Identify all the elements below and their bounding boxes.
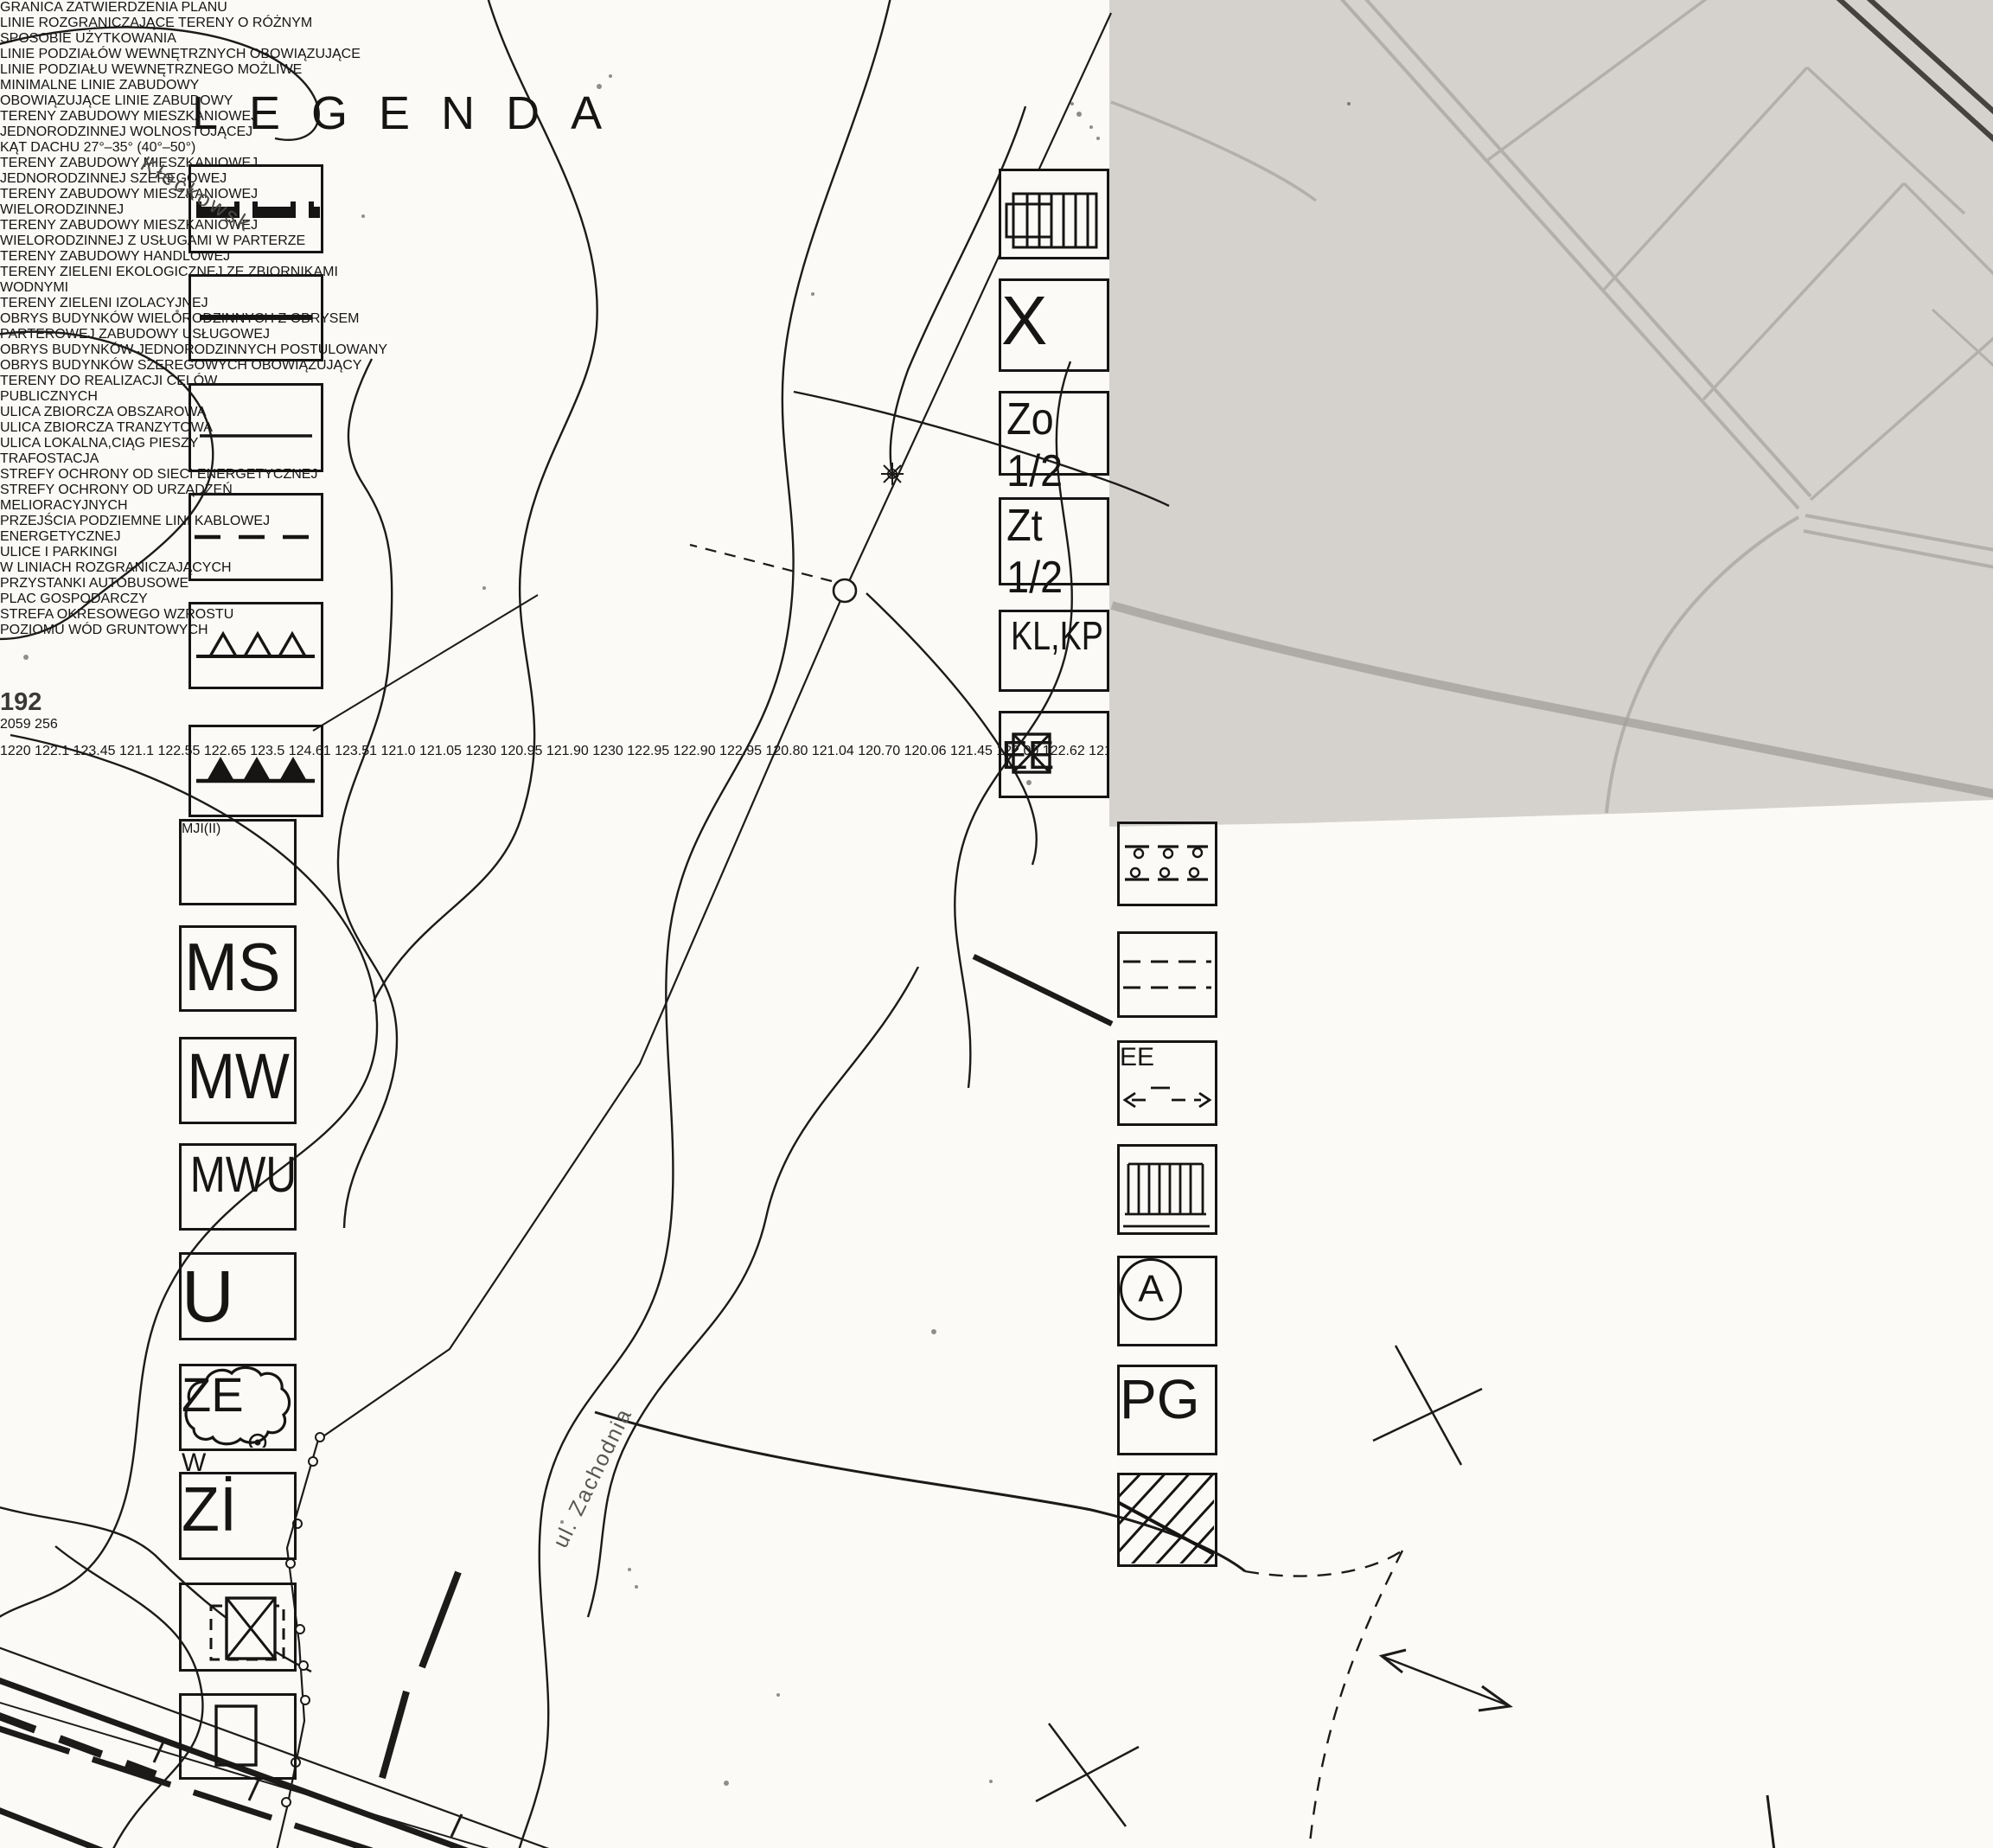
legend-box-u: U (179, 1252, 297, 1340)
legend-box-mw: MW (179, 1037, 297, 1124)
legend-box-linie-podzialow (188, 383, 323, 472)
small-square-symbol (182, 1696, 293, 1776)
legend-box-strefa-wod (1117, 1473, 1217, 1567)
legend-box-ms: MS (179, 925, 297, 1012)
cable-crossing-symbol (1120, 1043, 1214, 1122)
rowhouse-outline-symbol (1001, 171, 1106, 256)
thin-line-symbol (191, 386, 320, 469)
legend-box-strefy-energetyczne (1117, 822, 1217, 906)
survey-line (277, 13, 1111, 1848)
legend-box-pg: PG (1117, 1365, 1217, 1455)
ms-symbol: MS (184, 928, 291, 1009)
legend-box-linie-podzialu-mozliwe (188, 493, 323, 581)
legend-title: LEGENDA (192, 86, 633, 140)
legend-box-obrys-wielorodzinnych (179, 1583, 297, 1672)
ze-cloud-symbol (182, 1366, 293, 1448)
energy-zone-symbol (1120, 824, 1214, 903)
mj-symbol-sub2: II (208, 822, 216, 836)
mj-symbol: MJI(II) (182, 822, 294, 837)
diagonal-hatch-symbol (1120, 1475, 1214, 1563)
legend-box-przystanki: A (1117, 1256, 1217, 1346)
bus-stop-symbol: A (1120, 1258, 1215, 1344)
u-symbol: U (182, 1255, 294, 1338)
legend-box-minimalne-linie (188, 602, 323, 689)
legend-box-mj: MJI(II) (179, 819, 297, 905)
zi-symbol: Zİ (182, 1474, 294, 1557)
mw-symbol: MW (188, 1039, 289, 1122)
dashed-line-symbol (191, 496, 320, 578)
legend-box-obrys-jednorodzinnych (179, 1693, 297, 1780)
survey-node-star (881, 463, 904, 485)
bus-stop-circle: A (1120, 1258, 1182, 1320)
open-triangle-line-symbol (191, 604, 320, 686)
mj-paren-close: ) (216, 822, 220, 836)
legend-box-obrys-szeregowych (999, 169, 1109, 259)
bus-stop-letter: A (1138, 1268, 1163, 1311)
legend-box-mwu: MWU (179, 1143, 297, 1231)
legend-box-ze: ZE W (179, 1364, 297, 1451)
filled-triangle-line-symbol (191, 727, 320, 814)
legend-box-strefy-melioracyjne (1117, 931, 1217, 1018)
legend-box-przejscia-kablowe: EE (1117, 1040, 1217, 1126)
mj-symbol-main: MJ (182, 822, 200, 836)
crossed-square-symbol (182, 1585, 293, 1668)
pg-symbol: PG (1120, 1367, 1215, 1453)
legend-box-zi: Zİ (179, 1472, 297, 1560)
parking-comb-symbol (1120, 1147, 1214, 1231)
legend-box-linie-rozgraniczajace (188, 274, 323, 361)
legend-box-tereny-publiczne: X (999, 278, 1109, 372)
plan-legend-sheet: LEGENDA (0, 0, 1993, 1848)
mwu-symbol: MWU (190, 1146, 286, 1228)
legend-box-ulice-parkingi (1117, 1144, 1217, 1235)
melioration-zone-symbol (1120, 934, 1214, 1014)
solid-line-symbol (191, 277, 320, 358)
x-symbol: X (1001, 281, 1107, 369)
legend-box-obowiazujace-linie (188, 725, 323, 817)
